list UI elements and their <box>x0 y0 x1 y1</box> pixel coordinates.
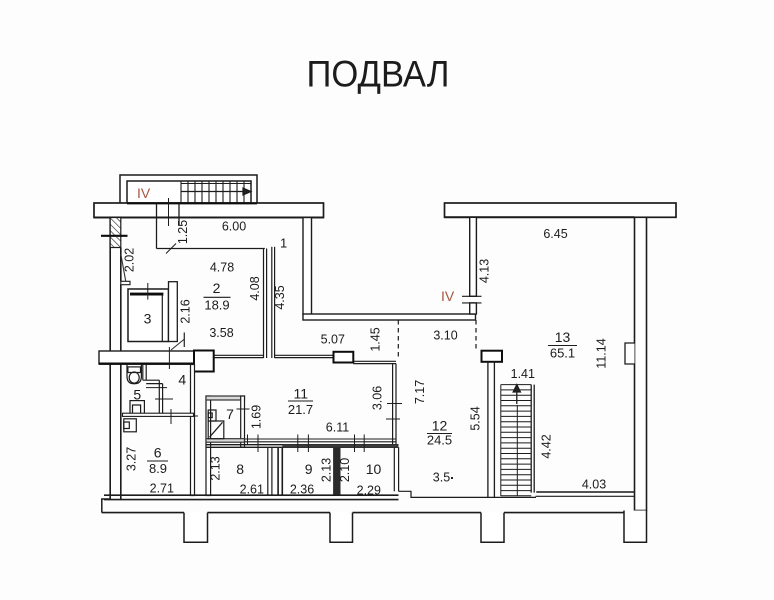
svg-text:2.36: 2.36 <box>290 483 314 497</box>
svg-text:6.00: 6.00 <box>222 220 246 234</box>
svg-text:8.9: 8.9 <box>149 461 167 476</box>
svg-text:3.5: 3.5 <box>433 471 450 485</box>
svg-text:4.03: 4.03 <box>582 478 606 492</box>
svg-text:3.27: 3.27 <box>124 447 138 471</box>
svg-text:7.17: 7.17 <box>413 380 427 404</box>
svg-text:6: 6 <box>154 445 162 461</box>
svg-text:12: 12 <box>432 418 448 434</box>
svg-text:65.1: 65.1 <box>550 346 575 361</box>
svg-text:2.16: 2.16 <box>179 299 193 323</box>
svg-text:4.78: 4.78 <box>210 261 234 275</box>
svg-text:3.06: 3.06 <box>371 386 385 410</box>
svg-text:2.13: 2.13 <box>209 456 223 480</box>
svg-text:2.10: 2.10 <box>338 458 352 482</box>
svg-text:11: 11 <box>294 386 309 402</box>
svg-text:IV: IV <box>441 288 455 304</box>
svg-text:3: 3 <box>144 311 152 327</box>
svg-text:6.11: 6.11 <box>326 421 349 435</box>
svg-text:2.13: 2.13 <box>320 458 334 482</box>
svg-text:5.07: 5.07 <box>321 333 345 347</box>
svg-text:3.10: 3.10 <box>433 329 457 343</box>
svg-text:10: 10 <box>366 461 382 477</box>
svg-text:8: 8 <box>236 461 244 477</box>
svg-text:13: 13 <box>555 329 571 345</box>
svg-text:6.45: 6.45 <box>543 227 567 241</box>
svg-text:9: 9 <box>305 461 313 477</box>
svg-text:7: 7 <box>226 406 234 422</box>
svg-text:2: 2 <box>213 280 221 296</box>
svg-text:24.5: 24.5 <box>427 433 452 448</box>
svg-text:1.25: 1.25 <box>176 220 190 244</box>
svg-text:4: 4 <box>178 372 186 388</box>
svg-text:2.71: 2.71 <box>150 482 174 496</box>
svg-text:5.54: 5.54 <box>469 406 483 430</box>
svg-text:3.58: 3.58 <box>209 326 233 340</box>
svg-text:4.13: 4.13 <box>478 259 492 283</box>
svg-text:ПОДВАЛ: ПОДВАЛ <box>307 53 450 95</box>
svg-text:4.08: 4.08 <box>248 276 262 300</box>
svg-text:1.69: 1.69 <box>250 405 264 429</box>
svg-text:1: 1 <box>280 236 287 251</box>
svg-text:11.14: 11.14 <box>594 338 608 368</box>
svg-text:21.7: 21.7 <box>288 402 313 417</box>
svg-text:4.35: 4.35 <box>273 285 287 309</box>
svg-text:1.45: 1.45 <box>368 327 382 351</box>
svg-text:4.42: 4.42 <box>539 434 553 458</box>
svg-text:IV: IV <box>137 185 151 201</box>
svg-text:18.9: 18.9 <box>204 298 229 313</box>
svg-text:1.41: 1.41 <box>511 367 535 381</box>
svg-text:2.02: 2.02 <box>122 248 136 272</box>
svg-text:2.61: 2.61 <box>240 483 264 497</box>
